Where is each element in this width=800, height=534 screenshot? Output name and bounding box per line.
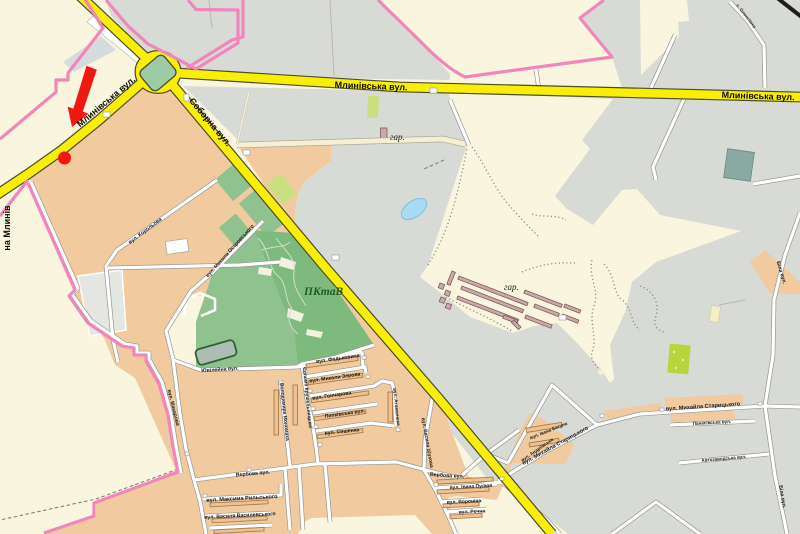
svg-text:на Млинів: на Млинів — [2, 205, 12, 251]
svg-text:гар.: гар. — [504, 282, 519, 292]
svg-text:ПКтаВ: ПКтаВ — [303, 286, 343, 298]
svg-text:гар.: гар. — [390, 132, 405, 142]
